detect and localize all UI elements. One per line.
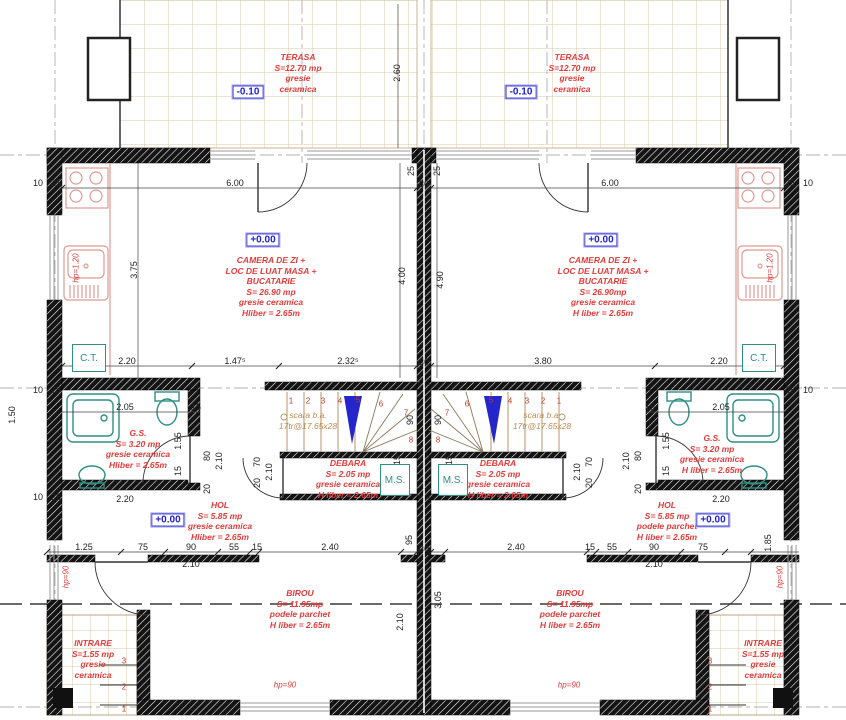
pier-bottom-right — [773, 688, 793, 708]
stair-direction-arrow — [484, 396, 502, 444]
bathroom-right — [667, 392, 779, 488]
stair-right — [429, 392, 565, 452]
stair-direction-arrow — [344, 396, 362, 444]
pier-bottom-left — [53, 688, 73, 708]
kitchen-right — [736, 163, 782, 375]
terrace-right — [431, 0, 728, 148]
bathroom-left — [67, 392, 179, 488]
porch-right — [709, 615, 784, 715]
floor-plan: TERASAS=12.70 mpgresieceramicaTERASAS=12… — [0, 0, 846, 720]
kitchen-left — [64, 163, 110, 375]
pillar-top-right — [737, 38, 779, 100]
terrace-left — [120, 0, 417, 148]
stair-left — [281, 392, 417, 452]
floor-plan-drawing — [0, 0, 846, 720]
pillar-top-left — [88, 38, 130, 100]
walls — [47, 148, 799, 715]
